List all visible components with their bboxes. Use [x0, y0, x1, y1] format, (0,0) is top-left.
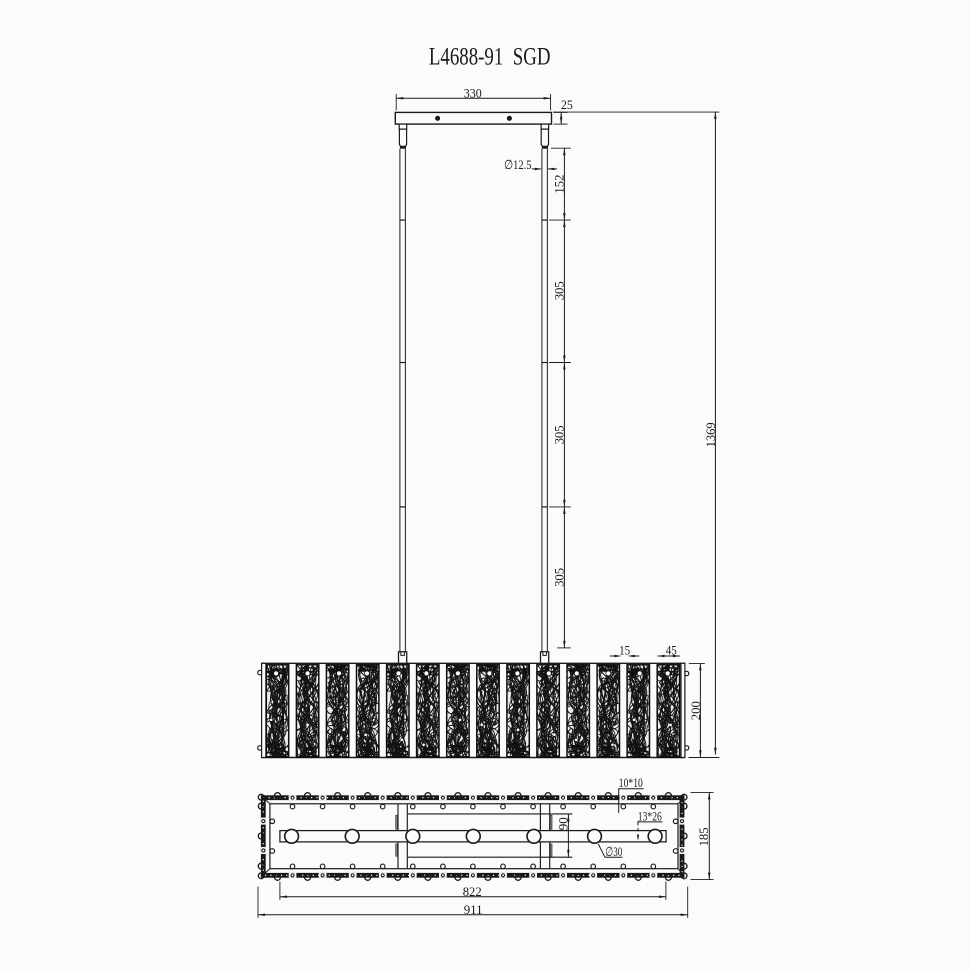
svg-text:90: 90: [557, 817, 571, 830]
svg-text:305: 305: [551, 568, 566, 587]
svg-text:L4688-91 SGD: L4688-91 SGD: [429, 42, 551, 71]
svg-text:25: 25: [561, 97, 573, 112]
svg-text:∅12.5: ∅12.5: [504, 157, 532, 172]
svg-text:10*10: 10*10: [619, 775, 643, 790]
svg-text:305: 305: [551, 281, 566, 300]
svg-text:330: 330: [464, 86, 482, 101]
svg-text:15: 15: [619, 643, 630, 657]
svg-text:200: 200: [688, 701, 703, 720]
svg-text:185: 185: [696, 827, 711, 846]
svg-text:305: 305: [551, 425, 566, 444]
svg-text:1369: 1369: [703, 422, 718, 447]
svg-text:∅30: ∅30: [605, 844, 622, 859]
svg-text:911: 911: [464, 902, 483, 917]
svg-text:13*26: 13*26: [638, 809, 662, 824]
svg-text:822: 822: [463, 884, 482, 899]
svg-text:152: 152: [551, 175, 566, 194]
